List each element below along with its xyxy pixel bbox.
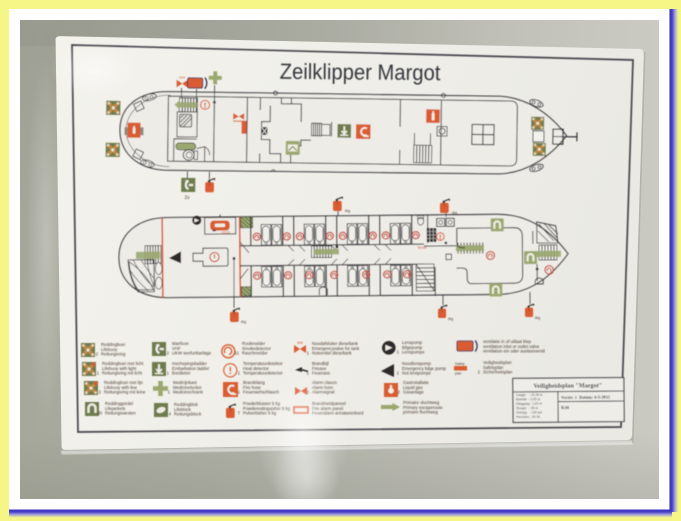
svg-text:B.M: B.M [561,405,569,410]
svg-text:2x: 2x [184,195,190,201]
svg-text:LR20: LR20 [222,230,230,234]
svg-text:6kg: 6kg [452,211,457,215]
svg-text:Veiligheidsplan "Margot": Veiligheidsplan "Margot" [533,382,602,390]
svg-text:Brood: Brood [418,246,427,250]
svg-text:###: ### [179,76,185,80]
svg-text:Zeilklipper Margot: Zeilklipper Margot [280,60,441,85]
svg-text:6kg: 6kg [448,317,453,321]
svg-text:11: 11 [235,351,240,356]
svg-text:Safety: Safety [455,362,465,366]
svg-text:###: ### [297,341,303,345]
svg-text:plan: plan [455,372,462,376]
svg-text:6kg: 6kg [241,320,246,324]
svg-text:6kg: 6kg [345,209,350,213]
svg-text:LenspompBilgepumpLenspumpe: LenspompBilgepumpLenspumpe [402,340,425,355]
svg-text:30: 30 [97,411,102,416]
svg-text:Primaire vluchtwegPrimary esca: Primaire vluchtwegPrimary escaperoutepri… [403,400,443,415]
svg-text:Versie: 1 Datum: 6-5-2012: Versie: 1 Datum: 6-5-2012 [561,394,610,399]
svg-text:6kg: 6kg [535,316,540,320]
